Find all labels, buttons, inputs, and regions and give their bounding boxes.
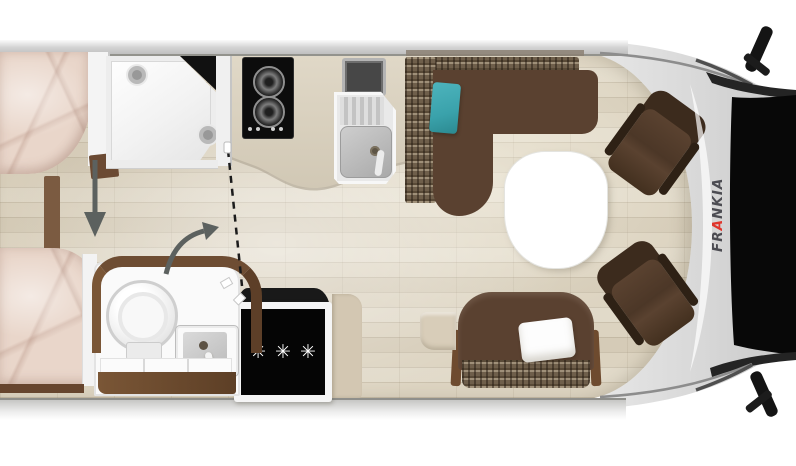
sliding-door-dashed-line <box>228 150 242 286</box>
motorhome-floorplan-canvas: ✳✳✳ FRANKIA <box>0 0 796 466</box>
door-swing-arrow-arc <box>166 231 204 274</box>
bed-direction-arrow-head <box>84 212 106 237</box>
door-swing-arrow-head <box>202 222 219 240</box>
door-pivot-marker <box>224 142 231 153</box>
annotations-svg <box>0 0 796 466</box>
